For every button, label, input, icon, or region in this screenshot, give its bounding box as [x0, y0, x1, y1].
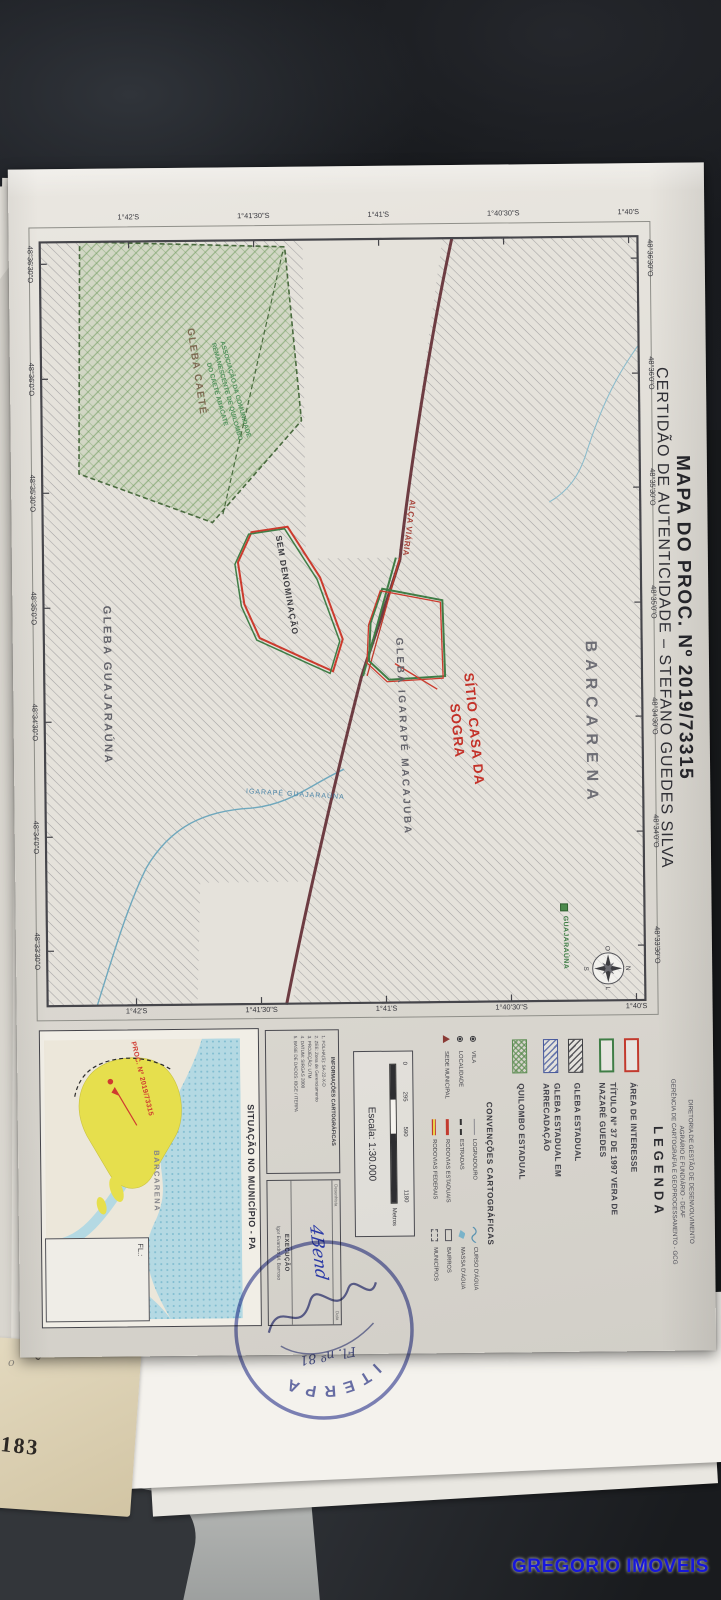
lat-label: 1°41'S	[359, 1003, 415, 1016]
svg-text:O: O	[603, 946, 610, 951]
lat-label: 1°41'30"S	[234, 1005, 290, 1018]
rodovia-estadual-line-icon	[446, 1119, 449, 1135]
lon-label: 48°35'30"O	[28, 461, 38, 525]
cartographic-info-box: INFORMAÇÕES CARTOGRÁFICAS 1. FOLHA(S): S…	[265, 1029, 341, 1174]
locality-marker	[561, 904, 568, 911]
lon-label: 48°35'30"O	[648, 455, 658, 519]
lon-label: 48°35'0"O	[29, 576, 39, 640]
lon-label: 48°34'0"O	[31, 805, 41, 869]
lon-label: 48°36'30"O	[25, 232, 35, 296]
legend-item: QUILOMBO ESTADUAL	[512, 1039, 530, 1288]
legend-title: LEGENDA	[650, 1016, 668, 1328]
logradouro-line-icon	[474, 1118, 475, 1134]
lon-label: 48°33'30"O	[33, 919, 43, 983]
lon-label: 48°35'0"O	[649, 570, 659, 634]
folio-box: FL.:	[45, 1237, 150, 1322]
lat-label: 1°41'S	[350, 210, 406, 223]
photo-scene: 183 8 4ur 8 o MAPA DO PROC. Nº 2019/7331…	[0, 0, 721, 1600]
scale-text: Escala: 1:30.000	[365, 1052, 378, 1236]
area-interesse-swatch	[624, 1038, 639, 1072]
lat-label: 1°40'30"S	[475, 208, 531, 221]
lon-label: 48°34'30"O	[650, 684, 660, 748]
lat-label: 1°40'S	[609, 1001, 665, 1014]
iterpa-stamp: ITERPA Fl. nº 81	[211, 1217, 437, 1443]
lon-label: 48°36'0"O	[27, 347, 37, 411]
lon-label: 48°36'0"O	[647, 341, 657, 405]
conventions-lines: LOGRADOURO ESTRADAS RODOVIAS ESTADUAIS R…	[425, 1118, 480, 1203]
handwritten-mark: o	[8, 1356, 15, 1369]
legend-item: TÍTULO Nº 37 DE 1997 VERA DE NAZARÉ GUED…	[596, 1038, 619, 1232]
map-graphic: N L S O	[39, 235, 647, 1007]
legend-item: GLEBA ESTADUAL EM ARRECADAÇÃO	[540, 1039, 563, 1233]
rodovia-federal-line-icon	[432, 1119, 436, 1135]
bairros-icon	[445, 1229, 452, 1241]
agency-header: DIRETORIA DE GESTÃO DE DESENVOLVIMENTO A…	[667, 1016, 696, 1328]
conventions-places: VILA LOCALIDADE SEDE MUNICIPAL	[437, 1030, 478, 1099]
titulo-swatch	[599, 1038, 614, 1072]
svg-text:L: L	[604, 987, 611, 991]
localidade-icon	[457, 1035, 463, 1041]
curso-dagua-icon	[471, 1226, 479, 1242]
conventions-title: CONVENÇÕES CARTOGRÁFICAS	[484, 1018, 496, 1330]
lat-label: 1°42'S	[109, 1006, 165, 1019]
legend-item: ÁREA DE INTERESSE	[624, 1038, 642, 1287]
scale-bar-box: 0 295 590 1180 Metros Escala: 1:30.000	[353, 1050, 415, 1237]
svg-text:S: S	[582, 966, 589, 971]
quilombo-swatch	[512, 1039, 527, 1073]
vila-icon	[470, 1035, 476, 1041]
massa-dagua-icon	[458, 1230, 465, 1239]
lat-label: 1°42'S	[100, 212, 156, 225]
map-sheet: MAPA DO PROC. Nº 2019/73315 CERTIDÃO DE …	[8, 162, 716, 1357]
svg-text:N: N	[624, 966, 631, 971]
gleba-arrecadacao-swatch	[543, 1039, 558, 1073]
lat-label: 1°40'30"S	[484, 1002, 540, 1015]
lon-label: 48°36'30"O	[645, 226, 655, 290]
municipios-icon	[431, 1229, 438, 1241]
lon-label: 48°34'30"O	[30, 690, 40, 754]
scale-bar	[389, 1064, 397, 1204]
svg-text:ITERPA: ITERPA	[276, 1359, 386, 1407]
printed-number: 183	[0, 1431, 41, 1461]
beige-note-paper: 183 8 4ur 8	[0, 1337, 142, 1517]
map-document: MAPA DO PROC. Nº 2019/73315 CERTIDÃO DE …	[22, 171, 702, 1341]
estradas-line-icon	[460, 1118, 462, 1134]
sede-municipal-icon	[443, 1035, 450, 1043]
stamp-folio-note: Fl. nº 81	[298, 1343, 357, 1368]
gleba-estadual-swatch	[568, 1039, 583, 1073]
lon-label: 48°34'0"O	[651, 799, 661, 863]
lon-label: 48°33'30"O	[653, 913, 663, 977]
legend-item: GLEBA ESTADUAL	[568, 1039, 586, 1288]
lat-label: 1°40'S	[600, 207, 656, 220]
lat-label: 1°41'30"S	[225, 211, 281, 224]
folio-label: FL.:	[136, 1243, 145, 1256]
conventions-water: CURSO D'ÁGUA MASSA D'ÁGUA BAIRROS MUNICÍ…	[426, 1226, 481, 1291]
agency-watermark: GREGORIO IMOVEIS	[512, 1556, 709, 1578]
stamp-signature-scribble	[264, 1281, 381, 1333]
